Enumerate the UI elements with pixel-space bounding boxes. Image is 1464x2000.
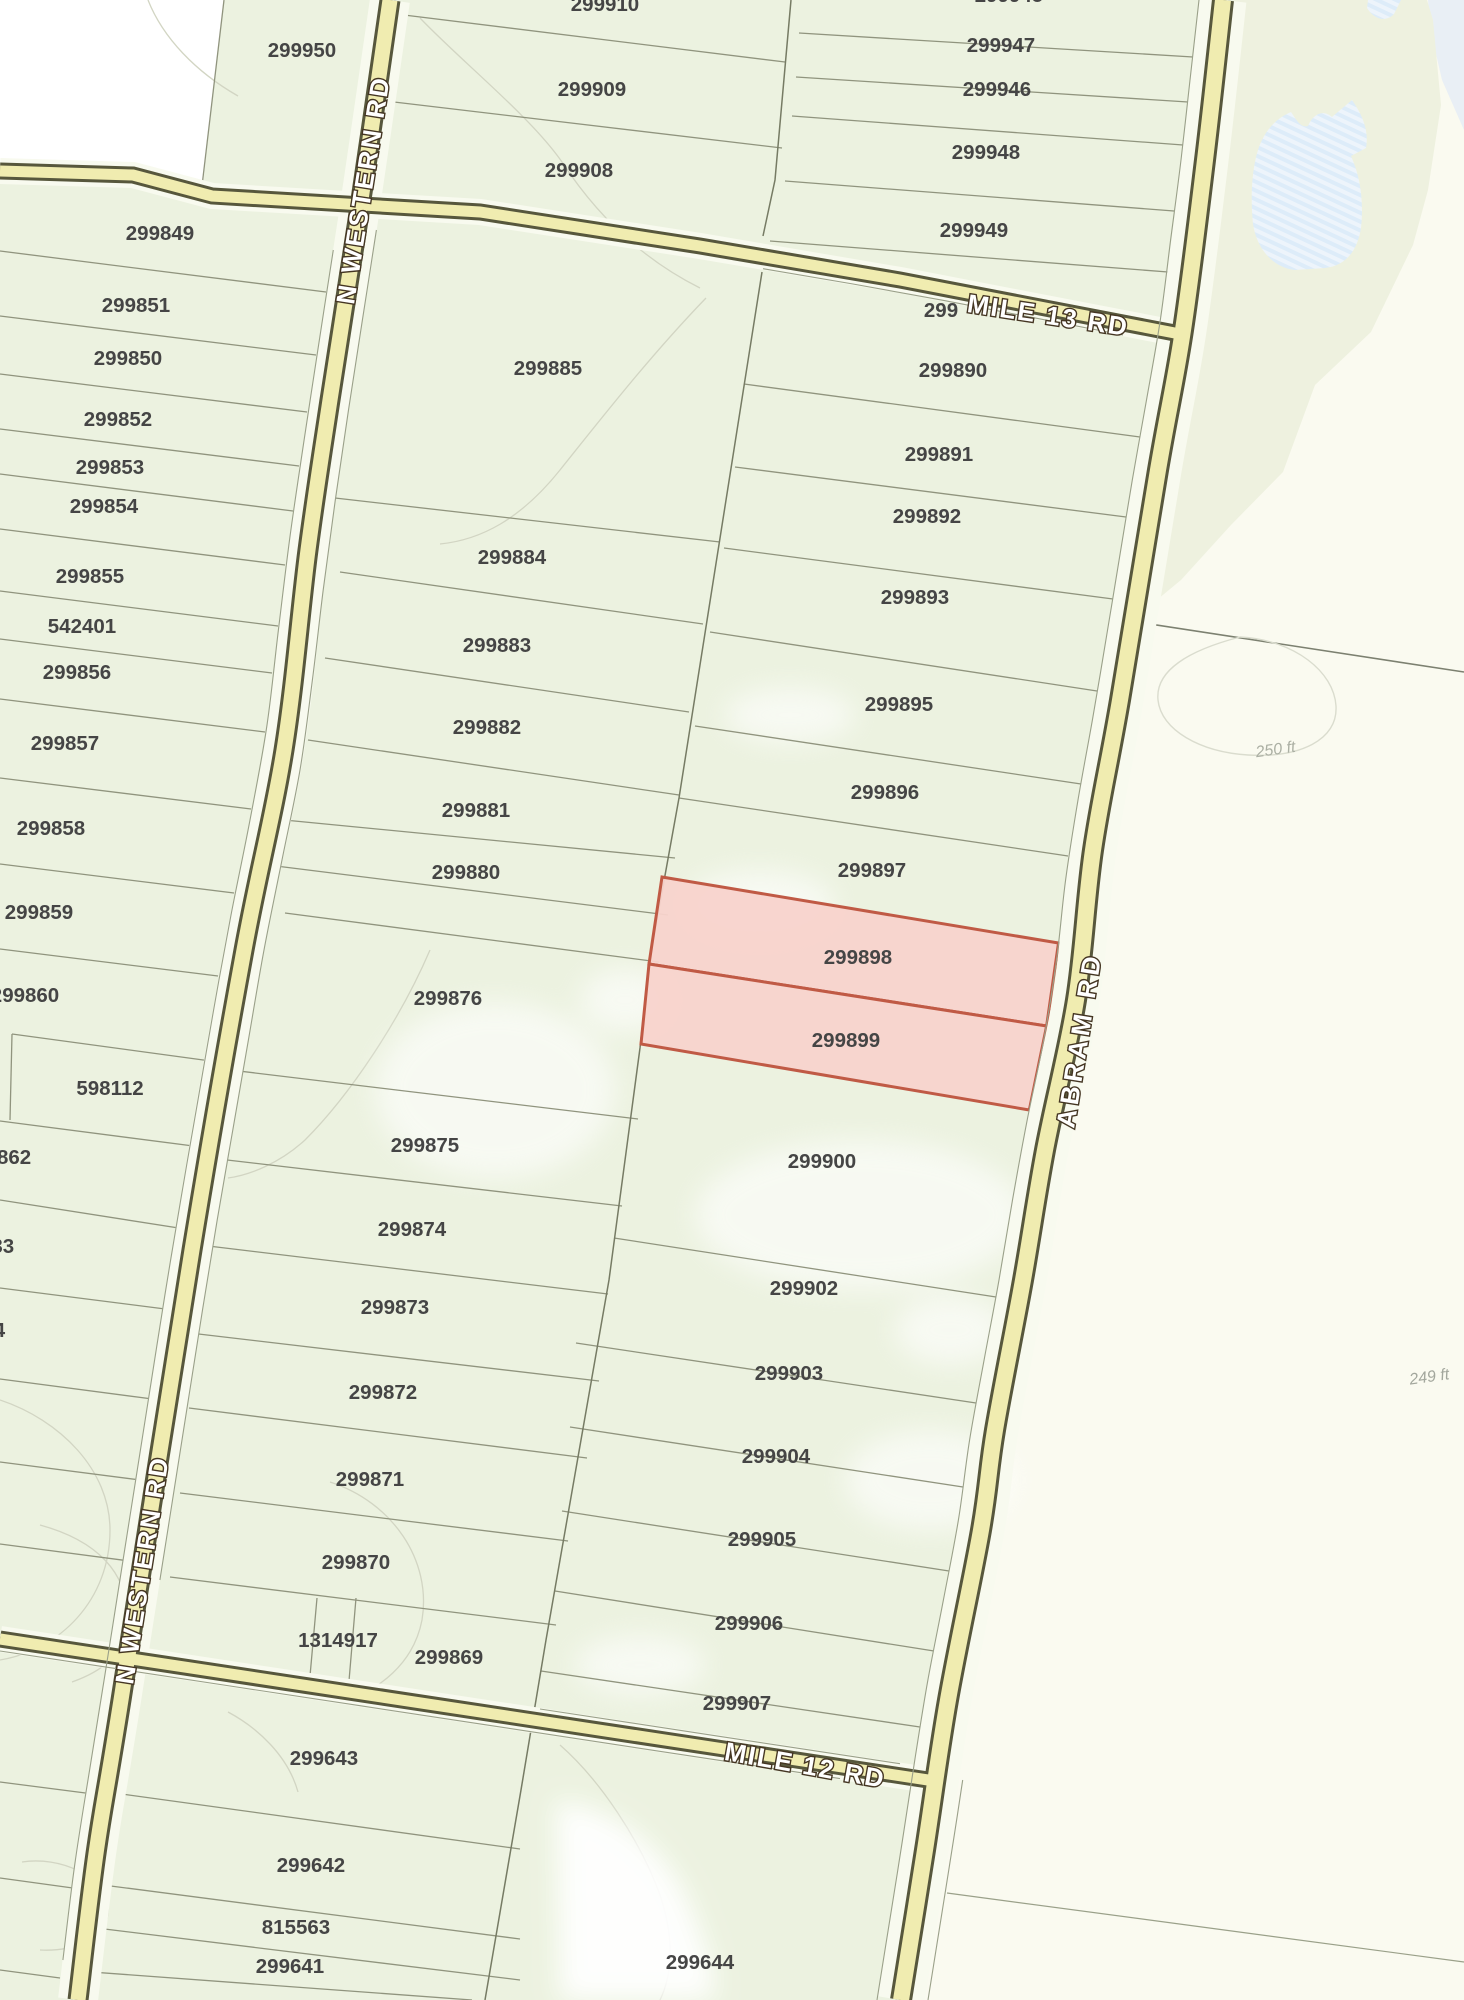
svg-text:299849: 299849 [126, 222, 194, 245]
svg-text:299885: 299885 [514, 357, 582, 380]
svg-text:299900: 299900 [788, 1150, 856, 1173]
svg-text:299869: 299869 [415, 1646, 483, 1669]
svg-text:542401: 542401 [48, 615, 116, 638]
svg-text:299896: 299896 [851, 781, 919, 804]
svg-text:299948: 299948 [952, 141, 1020, 164]
svg-text:299893: 299893 [881, 586, 949, 609]
svg-text:299874: 299874 [378, 1218, 447, 1241]
svg-text:299949: 299949 [940, 219, 1008, 242]
svg-text:299876: 299876 [414, 987, 482, 1010]
svg-text:299891: 299891 [905, 443, 973, 466]
svg-text:299643: 299643 [290, 1747, 358, 1770]
svg-text:299881: 299881 [442, 799, 510, 822]
svg-text:299875: 299875 [391, 1134, 459, 1157]
svg-text:299882: 299882 [453, 716, 521, 739]
svg-text:299: 299 [924, 299, 958, 322]
svg-text:299642: 299642 [277, 1854, 345, 1877]
svg-text:1314917: 1314917 [298, 1629, 378, 1652]
svg-text:299905: 299905 [728, 1528, 796, 1551]
svg-text:299906: 299906 [715, 1612, 783, 1635]
svg-text:299902: 299902 [770, 1277, 838, 1300]
svg-text:299641: 299641 [256, 1955, 324, 1978]
svg-text:299883: 299883 [463, 634, 531, 657]
svg-text:299858: 299858 [17, 817, 85, 840]
svg-text:299853: 299853 [76, 456, 144, 479]
svg-text:299892: 299892 [893, 505, 961, 528]
svg-text:299872: 299872 [349, 1381, 417, 1404]
svg-text:299897: 299897 [838, 859, 906, 882]
svg-text:815563: 815563 [262, 1916, 330, 1939]
svg-text:299947: 299947 [967, 34, 1035, 57]
svg-text:299898: 299898 [824, 946, 892, 969]
svg-text:299850: 299850 [94, 347, 162, 370]
svg-text:299851: 299851 [102, 294, 170, 317]
svg-text:299904: 299904 [742, 1445, 811, 1468]
svg-text:299908: 299908 [545, 159, 613, 182]
svg-text:299852: 299852 [84, 408, 152, 431]
svg-text:299945: 299945 [975, 0, 1043, 7]
svg-text:299870: 299870 [322, 1551, 390, 1574]
svg-text:299871: 299871 [336, 1468, 404, 1491]
svg-text:299950: 299950 [268, 39, 336, 62]
svg-text:299833: 299833 [0, 1235, 14, 1258]
svg-text:598112: 598112 [76, 1077, 143, 1100]
svg-text:299895: 299895 [865, 693, 933, 716]
svg-text:299855: 299855 [56, 565, 124, 588]
svg-text:299860: 299860 [0, 984, 59, 1007]
svg-text:299890: 299890 [919, 359, 987, 382]
svg-text:299644: 299644 [666, 1951, 735, 1974]
svg-text:299910: 299910 [571, 0, 639, 16]
svg-text:299856: 299856 [43, 661, 111, 684]
svg-text:299909: 299909 [558, 78, 626, 101]
svg-text:299899: 299899 [812, 1029, 880, 1052]
svg-text:299862: 299862 [0, 1146, 31, 1169]
svg-text:299884: 299884 [478, 546, 547, 569]
svg-text:299864: 299864 [0, 1319, 6, 1342]
svg-text:299857: 299857 [31, 732, 99, 755]
svg-text:299854: 299854 [70, 495, 139, 518]
svg-text:299873: 299873 [361, 1296, 429, 1319]
svg-text:299946: 299946 [963, 78, 1031, 101]
svg-text:299880: 299880 [432, 861, 500, 884]
svg-text:299907: 299907 [703, 1692, 771, 1715]
svg-text:299903: 299903 [755, 1362, 823, 1385]
svg-text:299859: 299859 [5, 901, 73, 924]
